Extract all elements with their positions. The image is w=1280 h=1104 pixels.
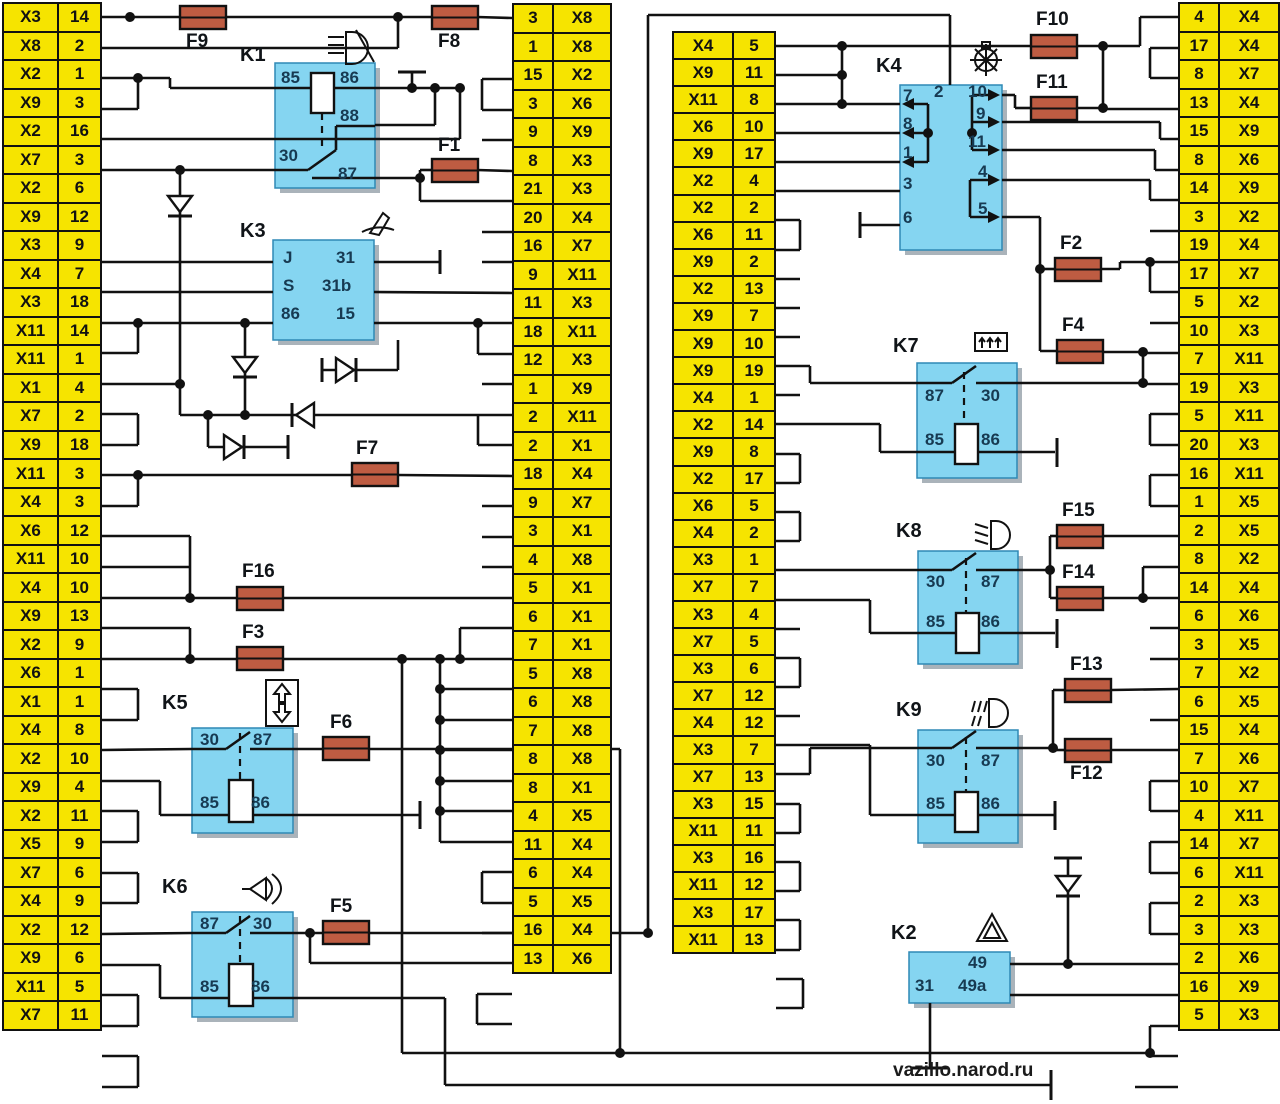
connector-cell-conn: X4 <box>672 31 734 60</box>
connector-row: X911 <box>672 58 776 87</box>
connector-row: X47 <box>2 259 102 290</box>
connector-cell-pin: 9 <box>512 488 554 519</box>
diode-icon <box>296 403 314 427</box>
connector-row: X26 <box>2 173 102 204</box>
connector-row: 8X7 <box>1178 59 1280 90</box>
connector-row: 15X9 <box>1178 116 1280 147</box>
connector-row: X118 <box>672 85 776 114</box>
connector-cell-pin: 19 <box>732 356 776 385</box>
connector-cell-conn: X4 <box>1218 230 1280 261</box>
connector-column-right: 4X417X48X713X415X98X614X93X219X417X75X21… <box>1178 2 1280 1031</box>
connector-cell-conn: X2 <box>1218 287 1280 318</box>
connector-row: 4X11 <box>1178 800 1280 831</box>
connector-cell-pin: 17 <box>732 139 776 168</box>
connector-row: X1110 <box>2 544 102 575</box>
junction-dot <box>175 165 185 175</box>
connector-cell-conn: X7 <box>1218 259 1280 290</box>
junction-dot <box>1098 41 1108 51</box>
connector-cell-conn: X3 <box>1218 886 1280 917</box>
connector-row: X22 <box>672 194 776 223</box>
connector-cell-conn: X9 <box>672 139 734 168</box>
hazard-warning-icon <box>977 914 1007 941</box>
connector-cell-pin: 9 <box>57 886 102 917</box>
fog-light-icon <box>972 699 1008 727</box>
wiring-diagram: X314X82X21X93X216X73X26X912X39X47X318X11… <box>0 0 1280 1104</box>
connector-cell-conn: X7 <box>2 857 59 888</box>
connector-row: X113 <box>2 458 102 489</box>
connector-cell-pin: 3 <box>57 88 102 119</box>
connector-cell-pin: 3 <box>57 458 102 489</box>
connector-cell-pin: 11 <box>732 58 776 87</box>
connector-row: X318 <box>2 287 102 318</box>
connector-row: X213 <box>672 275 776 304</box>
connector-cell-pin: 13 <box>732 763 776 792</box>
connector-cell-conn: X9 <box>552 117 612 148</box>
connector-cell-pin: 12 <box>57 915 102 946</box>
connector-cell-conn: X6 <box>672 112 734 141</box>
junction-dot <box>837 70 847 80</box>
connector-row: X917 <box>672 139 776 168</box>
junction-dot <box>435 684 445 694</box>
connector-row: 2X6 <box>1178 943 1280 974</box>
junction-dot <box>240 410 250 420</box>
connector-row: X713 <box>672 763 776 792</box>
connector-cell-conn: X4 <box>2 487 59 518</box>
connector-cell-pin: 15 <box>1178 715 1220 746</box>
connector-row: 2X5 <box>1178 515 1280 546</box>
connector-cell-conn: X3 <box>2 2 59 33</box>
connector-cell-pin: 3 <box>512 516 554 547</box>
connector-cell-pin: 7 <box>732 573 776 602</box>
connector-row: X412 <box>672 708 776 737</box>
connector-cell-pin: 11 <box>57 1000 102 1031</box>
connector-cell-conn: X4 <box>2 259 59 290</box>
connector-cell-pin: 19 <box>1178 373 1220 404</box>
connector-cell-pin: 9 <box>57 230 102 261</box>
connector-row: X41 <box>672 383 776 412</box>
connector-cell-conn: X6 <box>552 944 612 975</box>
connector-row: X210 <box>2 743 102 774</box>
connector-cell-pin: 7 <box>732 302 776 331</box>
connector-cell-pin: 1 <box>57 59 102 90</box>
wiper-icon <box>362 213 394 235</box>
low-beam-headlight-icon <box>975 521 1010 549</box>
connector-row: 8X6 <box>1178 145 1280 176</box>
connector-row: 1X8 <box>512 32 612 63</box>
connector-cell-conn: X3 <box>1218 430 1280 461</box>
connector-cell-conn: X4 <box>672 383 734 412</box>
connector-cell-conn: X8 <box>552 3 612 34</box>
connector-cell-pin: 3 <box>57 145 102 176</box>
connector-row: X59 <box>2 829 102 860</box>
connector-cell-pin: 1 <box>1178 487 1220 518</box>
connector-cell-pin: 10 <box>732 329 776 358</box>
connector-cell-pin: 17 <box>1178 31 1220 62</box>
connector-row: 5X5 <box>512 887 612 918</box>
connector-row: 12X3 <box>512 345 612 376</box>
junction-dot <box>1138 347 1148 357</box>
connector-column-mid_left: 3X81X815X23X69X98X321X320X416X79X1111X31… <box>512 3 612 974</box>
connector-cell-conn: X5 <box>1218 515 1280 546</box>
junction-dot <box>133 318 143 328</box>
connector-cell-pin: 6 <box>732 654 776 683</box>
connector-cell-pin: 8 <box>1178 544 1220 575</box>
relay-coil <box>955 424 978 464</box>
connector-cell-pin: 12 <box>732 681 776 710</box>
connector-cell-pin: 5 <box>1178 401 1220 432</box>
connector-row: 8X3 <box>512 146 612 177</box>
connector-cell-conn: X7 <box>2 1000 59 1031</box>
connector-row: 6X1 <box>512 602 612 633</box>
connector-cell-conn: X4 <box>2 572 59 603</box>
connector-cell-conn: X8 <box>552 687 612 718</box>
junction-dot <box>125 12 135 22</box>
connector-row: X97 <box>672 302 776 331</box>
connector-cell-pin: 6 <box>512 858 554 889</box>
connector-row: 18X11 <box>512 317 612 348</box>
connector-cell-pin: 9 <box>57 829 102 860</box>
connector-cell-conn: X9 <box>2 88 59 119</box>
connector-cell-conn: X9 <box>672 437 734 466</box>
connector-row: X96 <box>2 943 102 974</box>
connector-cell-conn: X9 <box>672 329 734 358</box>
connector-cell-conn: X8 <box>552 716 612 747</box>
connector-row: 3X8 <box>512 3 612 34</box>
connector-row: 14X7 <box>1178 829 1280 860</box>
connector-column-left: X314X82X21X93X216X73X26X912X39X47X318X11… <box>2 2 102 1031</box>
connector-cell-pin: 15 <box>732 790 776 819</box>
connector-row: X14 <box>2 373 102 404</box>
connector-cell-conn: X11 <box>552 260 612 291</box>
connector-cell-conn: X6 <box>2 658 59 689</box>
connector-row: 17X4 <box>1178 31 1280 62</box>
connector-cell-pin: 11 <box>57 800 102 831</box>
connector-row: X39 <box>2 230 102 261</box>
connector-cell-pin: 3 <box>512 89 554 120</box>
junction-dot <box>435 654 445 664</box>
connector-cell-conn: X1 <box>2 686 59 717</box>
connector-cell-pin: 3 <box>1178 629 1220 660</box>
connector-cell-pin: 16 <box>57 116 102 147</box>
connector-cell-pin: 5 <box>1178 1000 1220 1031</box>
connector-row: X612 <box>2 515 102 546</box>
connector-cell-conn: X9 <box>672 356 734 385</box>
connector-cell-conn: X8 <box>552 545 612 576</box>
connector-row: 3X1 <box>512 516 612 547</box>
connector-row: 5X2 <box>1178 287 1280 318</box>
connector-row: X76 <box>2 857 102 888</box>
connector-row: X1113 <box>672 925 776 954</box>
connector-row: 7X2 <box>1178 658 1280 689</box>
connector-cell-pin: 3 <box>512 3 554 34</box>
connector-cell-pin: 8 <box>57 715 102 746</box>
connector-cell-conn: X6 <box>672 221 734 250</box>
junction-dot <box>1045 565 1055 575</box>
connector-cell-conn: X5 <box>1218 487 1280 518</box>
connector-row: X65 <box>672 492 776 521</box>
junction-dot <box>393 12 403 22</box>
connector-cell-conn: X2 <box>1218 544 1280 575</box>
connector-cell-pin: 1 <box>57 686 102 717</box>
connector-cell-conn: X3 <box>672 898 734 927</box>
junction-dot <box>435 806 445 816</box>
connector-row: 8X8 <box>512 744 612 775</box>
connector-row: X21 <box>2 59 102 90</box>
connector-cell-pin: 2 <box>57 31 102 62</box>
connector-cell-pin: 18 <box>512 317 554 348</box>
connector-row: 5X3 <box>1178 1000 1280 1031</box>
connector-cell-pin: 4 <box>732 600 776 629</box>
connector-cell-pin: 16 <box>732 844 776 873</box>
junction-dot <box>185 654 195 664</box>
connector-row: X217 <box>672 465 776 494</box>
connector-cell-conn: X11 <box>552 402 612 433</box>
connector-cell-conn: X5 <box>1218 629 1280 660</box>
junction-dot <box>407 83 417 93</box>
junction-dot <box>305 928 315 938</box>
connector-cell-pin: 13 <box>512 944 554 975</box>
junction-dot <box>435 776 445 786</box>
connector-row: X912 <box>2 202 102 233</box>
connector-cell-conn: X7 <box>552 231 612 262</box>
connector-cell-pin: 7 <box>512 630 554 661</box>
connector-cell-conn: X3 <box>672 654 734 683</box>
junction-dot <box>1098 103 1108 113</box>
connector-cell-conn: X8 <box>552 744 612 775</box>
junction-dot <box>133 470 143 480</box>
connector-cell-pin: 6 <box>512 687 554 718</box>
connector-cell-pin: 8 <box>1178 59 1220 90</box>
connector-cell-pin: 17 <box>732 898 776 927</box>
connector-cell-pin: 11 <box>732 817 776 846</box>
connector-row: 14X4 <box>1178 572 1280 603</box>
connector-row: 16X11 <box>1178 458 1280 489</box>
relay-coil <box>311 73 334 113</box>
connector-cell-pin: 16 <box>512 231 554 262</box>
connector-cell-pin: 13 <box>732 275 776 304</box>
connector-cell-pin: 1 <box>57 658 102 689</box>
connector-cell-conn: X11 <box>1218 344 1280 375</box>
connector-row: 20X4 <box>512 203 612 234</box>
connector-cell-pin: 17 <box>1178 259 1220 290</box>
connector-row: X111 <box>2 344 102 375</box>
connector-row: 13X4 <box>1178 88 1280 119</box>
junction-dot <box>923 128 933 138</box>
connector-cell-pin: 11 <box>732 221 776 250</box>
connector-row: X34 <box>672 600 776 629</box>
connector-cell-conn: X4 <box>1218 715 1280 746</box>
connector-row: 10X3 <box>1178 316 1280 347</box>
connector-row: X712 <box>672 681 776 710</box>
connector-cell-conn: X4 <box>1218 2 1280 33</box>
connector-cell-pin: 4 <box>57 772 102 803</box>
connector-row: X314 <box>2 2 102 33</box>
connector-cell-pin: 14 <box>57 2 102 33</box>
connector-row: X75 <box>672 627 776 656</box>
connector-cell-pin: 2 <box>732 248 776 277</box>
connector-cell-conn: X1 <box>552 630 612 661</box>
connector-row: 7X8 <box>512 716 612 747</box>
connector-row: X214 <box>672 410 776 439</box>
connector-cell-conn: X2 <box>2 59 59 90</box>
connector-cell-conn: X3 <box>552 288 612 319</box>
connector-cell-conn: X3 <box>552 345 612 376</box>
connector-cell-conn: X6 <box>552 89 612 120</box>
connector-cell-conn: X11 <box>2 458 59 489</box>
connector-cell-conn: X8 <box>552 659 612 690</box>
connector-cell-conn: X9 <box>1218 116 1280 147</box>
connector-cell-conn: X3 <box>1218 1000 1280 1031</box>
connector-row: X72 <box>2 401 102 432</box>
junction-dot <box>430 83 440 93</box>
connector-cell-pin: 5 <box>732 492 776 521</box>
connector-cell-conn: X9 <box>1218 173 1280 204</box>
connector-cell-pin: 7 <box>1178 743 1220 774</box>
connector-cell-pin: 5 <box>512 887 554 918</box>
junction-dot <box>1138 378 1148 388</box>
connector-cell-conn: X6 <box>1218 145 1280 176</box>
connector-cell-pin: 16 <box>1178 972 1220 1003</box>
connector-cell-conn: X11 <box>2 344 59 375</box>
connector-cell-conn: X3 <box>552 174 612 205</box>
connector-cell-pin: 14 <box>57 316 102 347</box>
connector-cell-conn: X6 <box>2 515 59 546</box>
connector-cell-pin: 18 <box>512 459 554 490</box>
connector-row: X410 <box>2 572 102 603</box>
connector-cell-pin: 5 <box>57 972 102 1003</box>
connector-cell-conn: X3 <box>552 146 612 177</box>
connector-row: X919 <box>672 356 776 385</box>
connector-row: X37 <box>672 735 776 764</box>
connector-row: 19X3 <box>1178 373 1280 404</box>
connector-row: 2X11 <box>512 402 612 433</box>
connector-row: 16X9 <box>1178 972 1280 1003</box>
junction-dot <box>435 715 445 725</box>
relay-box <box>900 85 1002 250</box>
diode-icon <box>233 357 257 373</box>
connector-cell-pin: 10 <box>57 572 102 603</box>
connector-cell-pin: 18 <box>57 287 102 318</box>
connector-row: X913 <box>2 601 102 632</box>
junction-dot <box>837 41 847 51</box>
connector-cell-pin: 1 <box>512 374 554 405</box>
connector-row: 21X3 <box>512 174 612 205</box>
connector-cell-pin: 20 <box>1178 430 1220 461</box>
connector-cell-conn: X11 <box>1218 458 1280 489</box>
connector-row: X211 <box>2 800 102 831</box>
connector-cell-pin: 16 <box>512 915 554 946</box>
connector-cell-conn: X2 <box>2 173 59 204</box>
connector-cell-pin: 12 <box>57 202 102 233</box>
connector-row: 3X5 <box>1178 629 1280 660</box>
connector-cell-conn: X5 <box>1218 686 1280 717</box>
connector-cell-pin: 6 <box>57 173 102 204</box>
connector-row: 19X4 <box>1178 230 1280 261</box>
connector-cell-pin: 4 <box>1178 800 1220 831</box>
connector-cell-conn: X4 <box>1218 31 1280 62</box>
connector-cell-conn: X4 <box>552 858 612 889</box>
connector-cell-pin: 2 <box>1178 943 1220 974</box>
connector-cell-pin: 2 <box>512 431 554 462</box>
rear-defroster-icon <box>975 333 1007 351</box>
connector-row: 6X8 <box>512 687 612 718</box>
junction-dot <box>415 173 425 183</box>
connector-cell-pin: 19 <box>1178 230 1220 261</box>
connector-cell-conn: X2 <box>2 629 59 660</box>
connector-cell-conn: X3 <box>672 546 734 575</box>
connector-cell-conn: X3 <box>672 844 734 873</box>
connector-row: 6X4 <box>512 858 612 889</box>
connector-row: 20X3 <box>1178 430 1280 461</box>
junction-dot <box>1035 264 1045 274</box>
horn-icon <box>242 874 281 904</box>
connector-row: X1114 <box>2 316 102 347</box>
connector-cell-pin: 1 <box>57 344 102 375</box>
connector-cell-conn: X2 <box>672 465 734 494</box>
connector-cell-conn: X11 <box>672 925 734 954</box>
connector-cell-conn: X3 <box>2 230 59 261</box>
connector-cell-pin: 6 <box>512 602 554 633</box>
connector-row: 3X2 <box>1178 202 1280 233</box>
connector-row: X212 <box>2 915 102 946</box>
connector-cell-pin: 4 <box>57 373 102 404</box>
wire-layer <box>0 0 1280 1104</box>
connector-cell-conn: X3 <box>672 600 734 629</box>
connector-cell-conn: X4 <box>672 708 734 737</box>
connector-row: X42 <box>672 519 776 548</box>
connector-row: X918 <box>2 430 102 461</box>
connector-row: X98 <box>672 437 776 466</box>
connector-row: 4X5 <box>512 801 612 832</box>
connector-row: X77 <box>672 573 776 602</box>
connector-cell-pin: 12 <box>732 708 776 737</box>
connector-cell-conn: X2 <box>672 410 734 439</box>
connector-row: X93 <box>2 88 102 119</box>
connector-cell-conn: X4 <box>552 915 612 946</box>
watermark: vazillo.narod.ru <box>893 1060 1033 1082</box>
junction-dot <box>455 83 465 93</box>
connector-row: 4X8 <box>512 545 612 576</box>
connector-row: X48 <box>2 715 102 746</box>
junction-dot <box>837 99 847 109</box>
connector-cell-conn: X1 <box>552 573 612 604</box>
connector-cell-pin: 8 <box>1178 145 1220 176</box>
connector-cell-conn: X11 <box>672 85 734 114</box>
connector-cell-pin: 17 <box>732 465 776 494</box>
connector-cell-conn: X4 <box>672 519 734 548</box>
connector-row: 11X4 <box>512 830 612 861</box>
connector-cell-conn: X7 <box>2 145 59 176</box>
connector-cell-conn: X1 <box>552 602 612 633</box>
connector-cell-pin: 1 <box>732 546 776 575</box>
connector-cell-conn: X2 <box>1218 658 1280 689</box>
connector-cell-conn: X2 <box>2 116 59 147</box>
connector-cell-conn: X3 <box>1218 316 1280 347</box>
connector-cell-pin: 10 <box>732 112 776 141</box>
connector-cell-conn: X5 <box>2 829 59 860</box>
connector-cell-conn: X9 <box>552 374 612 405</box>
connector-row: 14X9 <box>1178 173 1280 204</box>
connector-cell-conn: X11 <box>2 544 59 575</box>
connector-row: 18X4 <box>512 459 612 490</box>
junction-dot <box>435 745 445 755</box>
connector-cell-conn: X2 <box>552 60 612 91</box>
connector-row: 15X4 <box>1178 715 1280 746</box>
connector-cell-pin: 2 <box>512 402 554 433</box>
connector-cell-conn: X7 <box>672 627 734 656</box>
junction-dot <box>175 379 185 389</box>
connector-row: X24 <box>672 166 776 195</box>
